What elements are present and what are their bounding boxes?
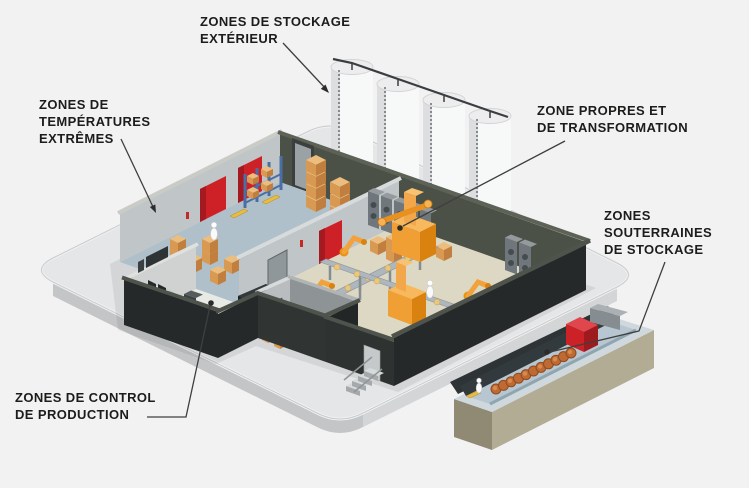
pallet-boxes-icon (306, 155, 326, 212)
worker-icon (211, 222, 218, 240)
callout-line: ZONES DE (39, 96, 150, 113)
callout-line: TEMPÉRATURES (39, 113, 150, 130)
worker-icon (476, 378, 482, 393)
leader-dot (544, 349, 550, 355)
callout-line: ZONES DE STOCKAGE (200, 13, 350, 30)
worker-icon (427, 280, 434, 298)
callout-line: EXTRÊMES (39, 130, 150, 147)
fire-extinguisher-icon (186, 212, 189, 219)
callout-line: DE PRODUCTION (15, 406, 156, 423)
callout-line: ZONES DE CONTROL (15, 389, 156, 406)
callout-line: DE TRANSFORMATION (537, 119, 688, 136)
callout-line: SOUTERRAINES (604, 224, 712, 241)
callout-production-control: ZONES DE CONTROL DE PRODUCTION (15, 389, 156, 423)
fire-extinguisher-icon (300, 240, 303, 247)
callout-line: ZONE PROPRES ET (537, 102, 688, 119)
callout-extreme-temperatures: ZONES DE TEMPÉRATURES EXTRÊMES (39, 96, 150, 147)
facility-diagram: ZONES DE STOCKAGE EXTÉRIEUR ZONES DE TEM… (0, 0, 749, 488)
callout-line: ZONES (604, 207, 712, 224)
door-shade (200, 186, 206, 222)
door-shade (319, 228, 325, 264)
callout-line: DE STOCKAGE (604, 241, 712, 258)
callout-exterior-storage: ZONES DE STOCKAGE EXTÉRIEUR (200, 13, 350, 47)
door-shade (238, 165, 244, 203)
leader-dot (208, 300, 214, 306)
callout-clean-transformation: ZONE PROPRES ET DE TRANSFORMATION (537, 102, 688, 136)
callout-underground-storage: ZONES SOUTERRAINES DE STOCKAGE (604, 207, 712, 258)
leader-dot (397, 225, 403, 231)
callout-line: EXTÉRIEUR (200, 30, 350, 47)
